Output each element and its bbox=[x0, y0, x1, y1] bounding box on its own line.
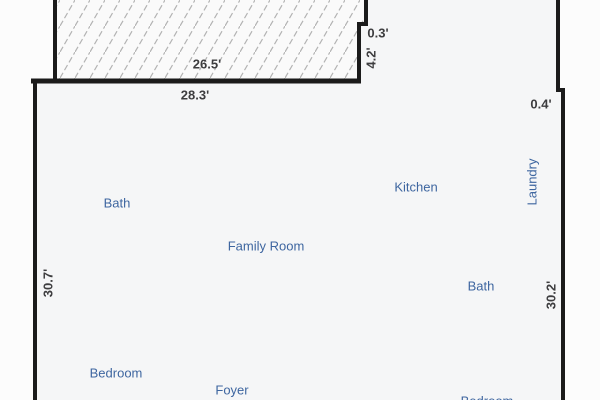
floor-plan-screenshot: Bath Kitchen Family Room Laundry Bath Be… bbox=[0, 0, 600, 400]
room-label-laundry: Laundry bbox=[525, 159, 540, 206]
dimension-garage-width: 26.5' bbox=[193, 57, 221, 72]
dimension-right-wall-height: 30.2' bbox=[544, 281, 559, 309]
floor-plan-canvas bbox=[0, 0, 600, 400]
dimension-left-wall-height: 30.7' bbox=[41, 269, 56, 297]
room-label-bedroom: Bedroom bbox=[90, 366, 143, 381]
room-label-bedroom-partial: Bedroom bbox=[461, 394, 514, 400]
dimension-right-step-width: 0.4' bbox=[530, 97, 551, 112]
room-label-foyer: Foyer bbox=[215, 383, 248, 398]
dimension-top-wall-width: 28.3' bbox=[181, 88, 209, 103]
dimension-notch-height: 4.2' bbox=[364, 47, 379, 68]
room-label-bath-lower: Bath bbox=[468, 279, 495, 294]
room-label-kitchen: Kitchen bbox=[394, 180, 437, 195]
room-label-family-room: Family Room bbox=[228, 239, 305, 254]
dimension-notch-width: 0.3' bbox=[367, 26, 388, 41]
room-label-bath-upper: Bath bbox=[104, 196, 131, 211]
